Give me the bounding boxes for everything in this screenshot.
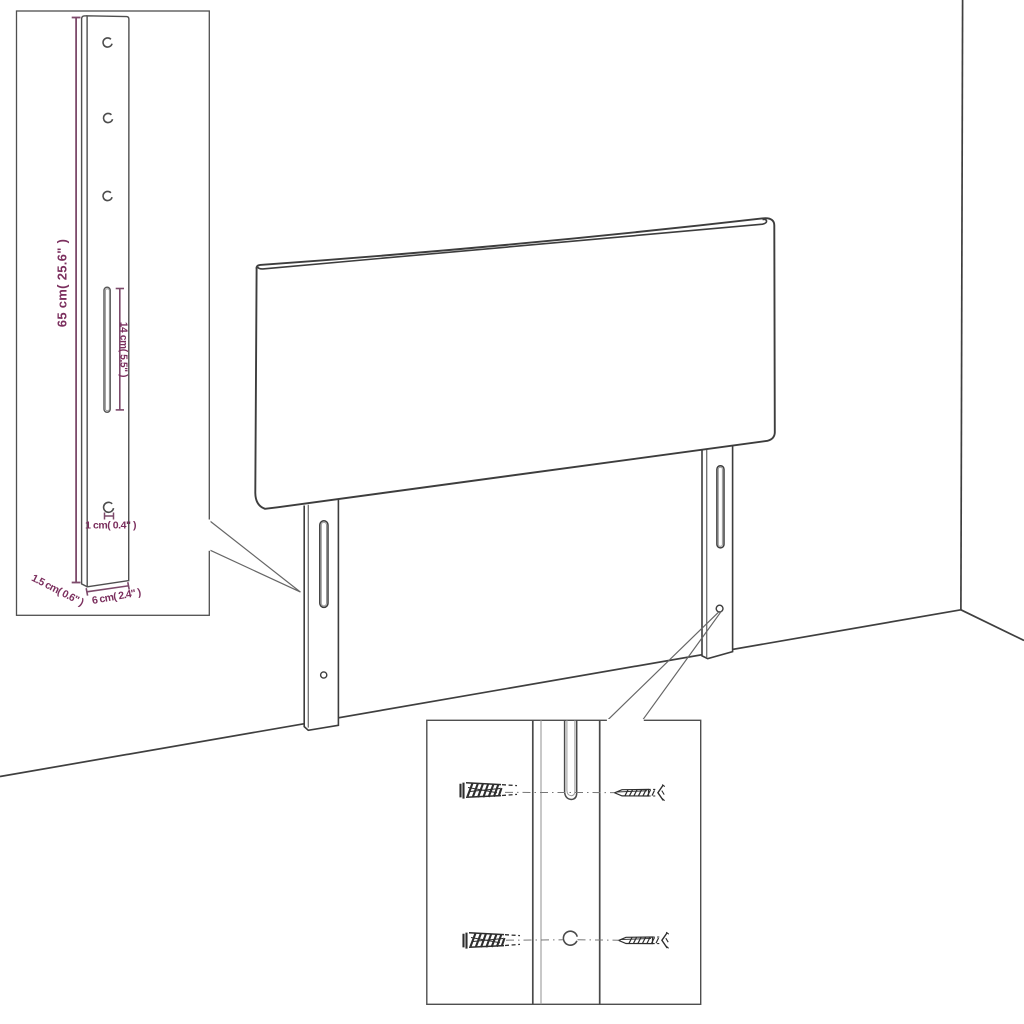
svg-text:1.5 cm( 0.6" ): 1.5 cm( 0.6" ): [29, 572, 85, 608]
svg-text:1 cm( 0.4" ): 1 cm( 0.4" ): [85, 520, 136, 532]
svg-text:65 cm( 25.6" ): 65 cm( 25.6" ): [55, 239, 70, 327]
svg-text:14 cm( 5.5" ): 14 cm( 5.5" ): [117, 322, 128, 377]
